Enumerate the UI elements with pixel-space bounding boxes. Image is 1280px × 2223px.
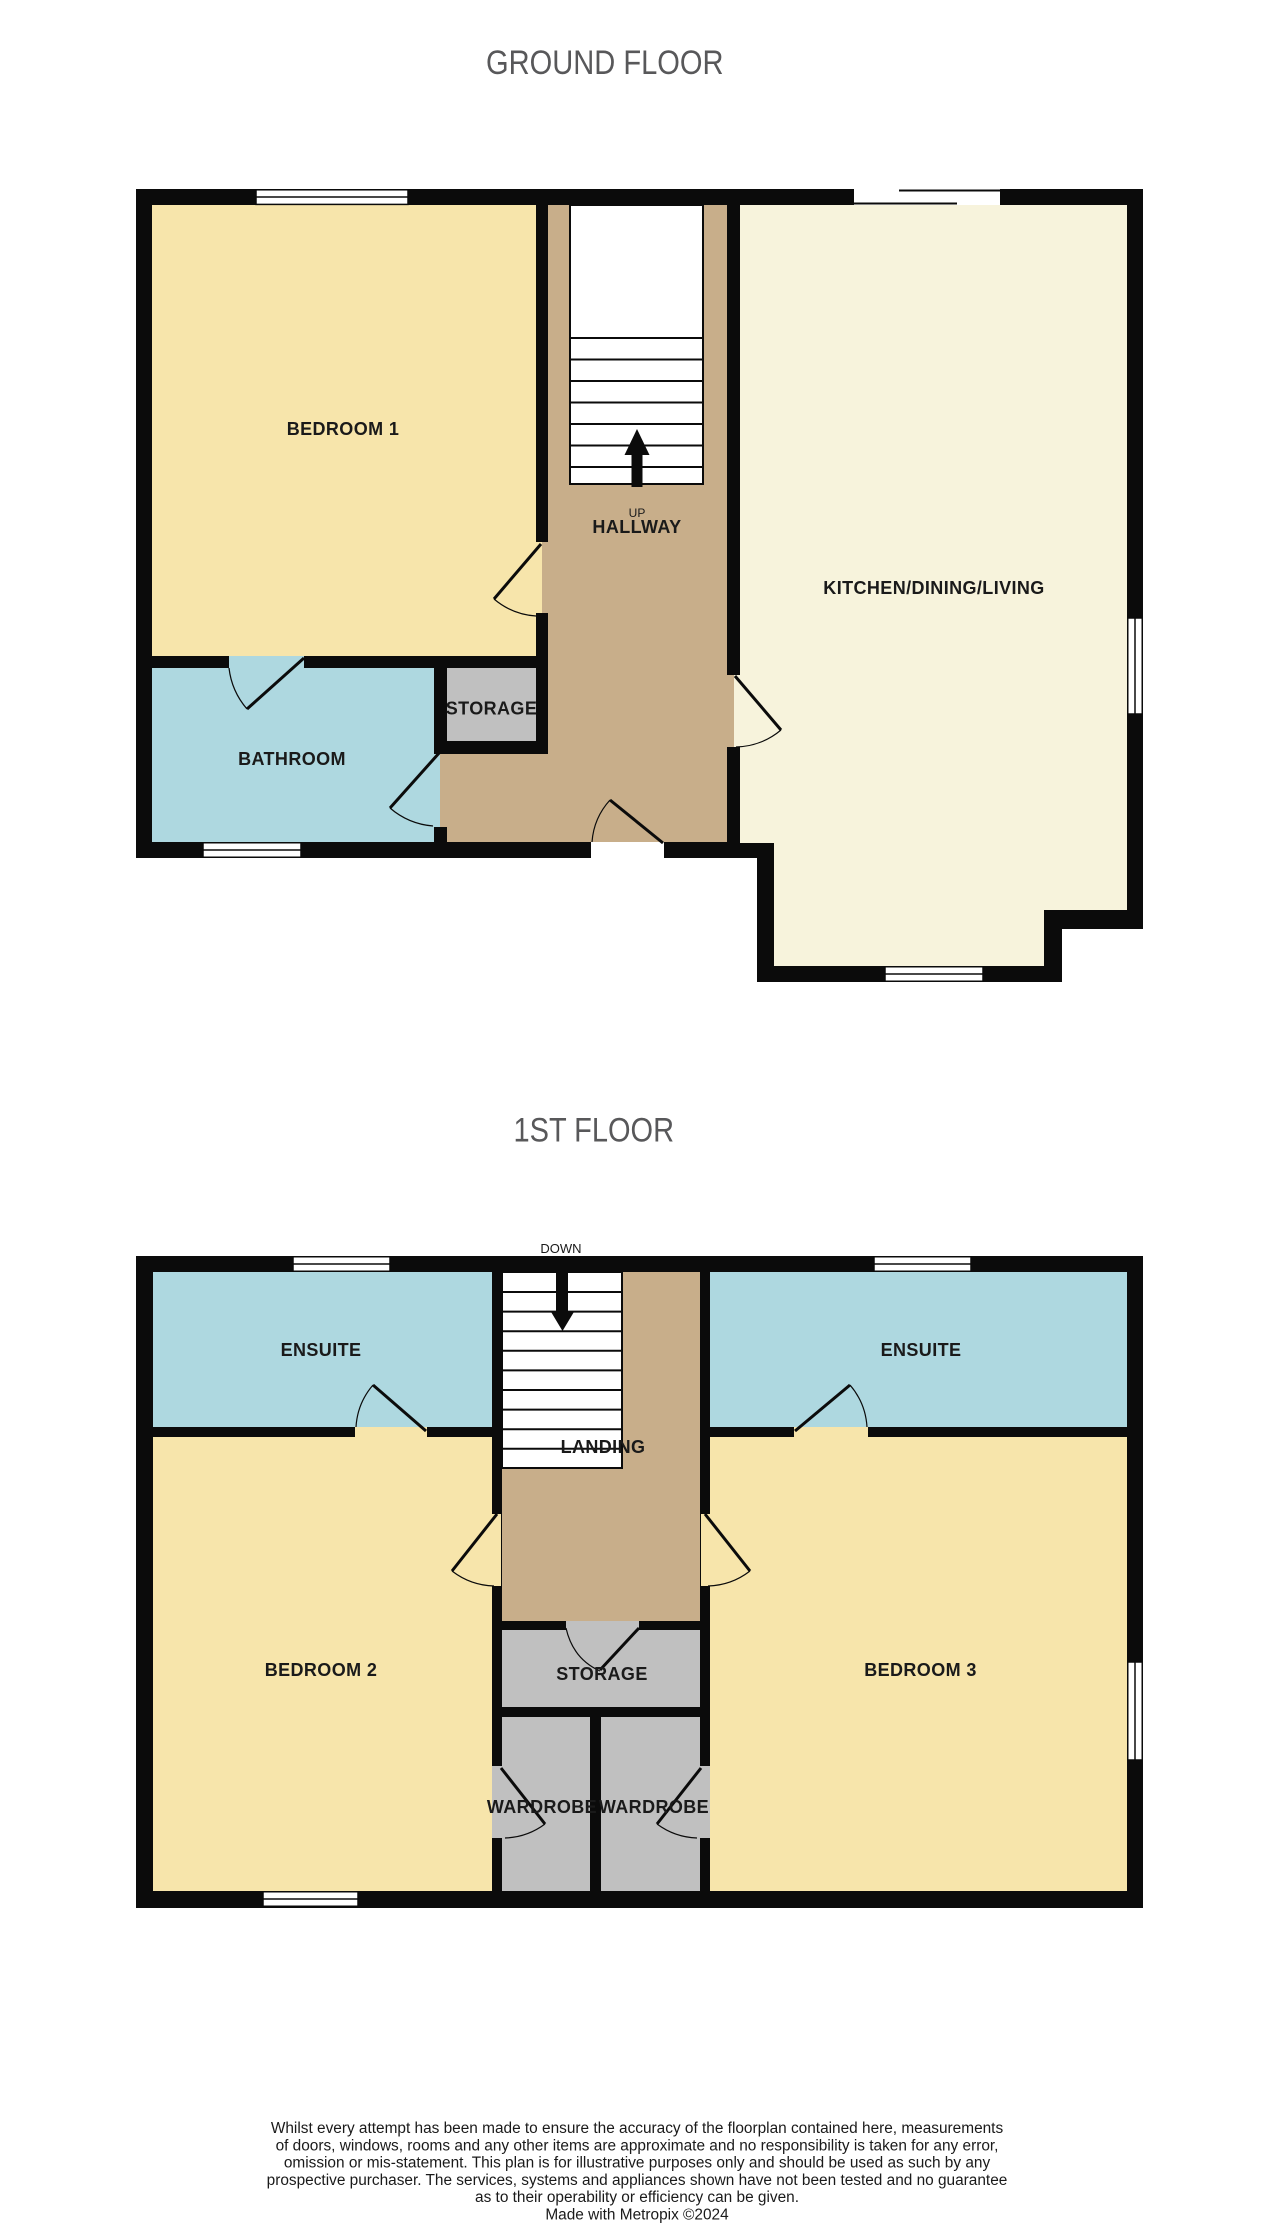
svg-text:1ST FLOOR: 1ST FLOOR bbox=[514, 1112, 675, 1150]
svg-text:BEDROOM 1: BEDROOM 1 bbox=[287, 419, 400, 439]
svg-text:prospective purchaser. The ser: prospective purchaser. The services, sys… bbox=[267, 2172, 1008, 2189]
svg-text:WARDROBE: WARDROBE bbox=[487, 1797, 597, 1817]
svg-text:HALLWAY: HALLWAY bbox=[592, 517, 681, 537]
svg-text:Made with Metropix ©2024: Made with Metropix ©2024 bbox=[545, 2207, 729, 2223]
svg-text:STORAGE: STORAGE bbox=[446, 699, 537, 719]
svg-text:STORAGE: STORAGE bbox=[556, 1664, 647, 1684]
svg-text:as to their operability or eff: as to their operability or efficiency ca… bbox=[475, 2189, 799, 2206]
svg-text:WARDROBE: WARDROBE bbox=[599, 1797, 709, 1817]
svg-text:BEDROOM 2: BEDROOM 2 bbox=[265, 1660, 378, 1680]
svg-text:KITCHEN/DINING/LIVING: KITCHEN/DINING/LIVING bbox=[823, 578, 1044, 598]
svg-text:GROUND FLOOR: GROUND FLOOR bbox=[486, 44, 724, 82]
svg-text:omission or mis-statement. Thi: omission or mis-statement. This plan is … bbox=[284, 2155, 991, 2172]
svg-text:ENSUITE: ENSUITE bbox=[281, 1340, 362, 1360]
svg-text:BATHROOM: BATHROOM bbox=[238, 749, 346, 769]
svg-text:BEDROOM 3: BEDROOM 3 bbox=[864, 1660, 977, 1680]
svg-text:DOWN: DOWN bbox=[540, 1241, 581, 1256]
svg-text:of doors, windows, rooms and a: of doors, windows, rooms and any other i… bbox=[276, 2137, 999, 2154]
svg-text:ENSUITE: ENSUITE bbox=[881, 1340, 962, 1360]
svg-text:LANDING: LANDING bbox=[561, 1437, 646, 1457]
svg-text:Whilst every attempt has been: Whilst every attempt has been made to en… bbox=[271, 2120, 1004, 2137]
